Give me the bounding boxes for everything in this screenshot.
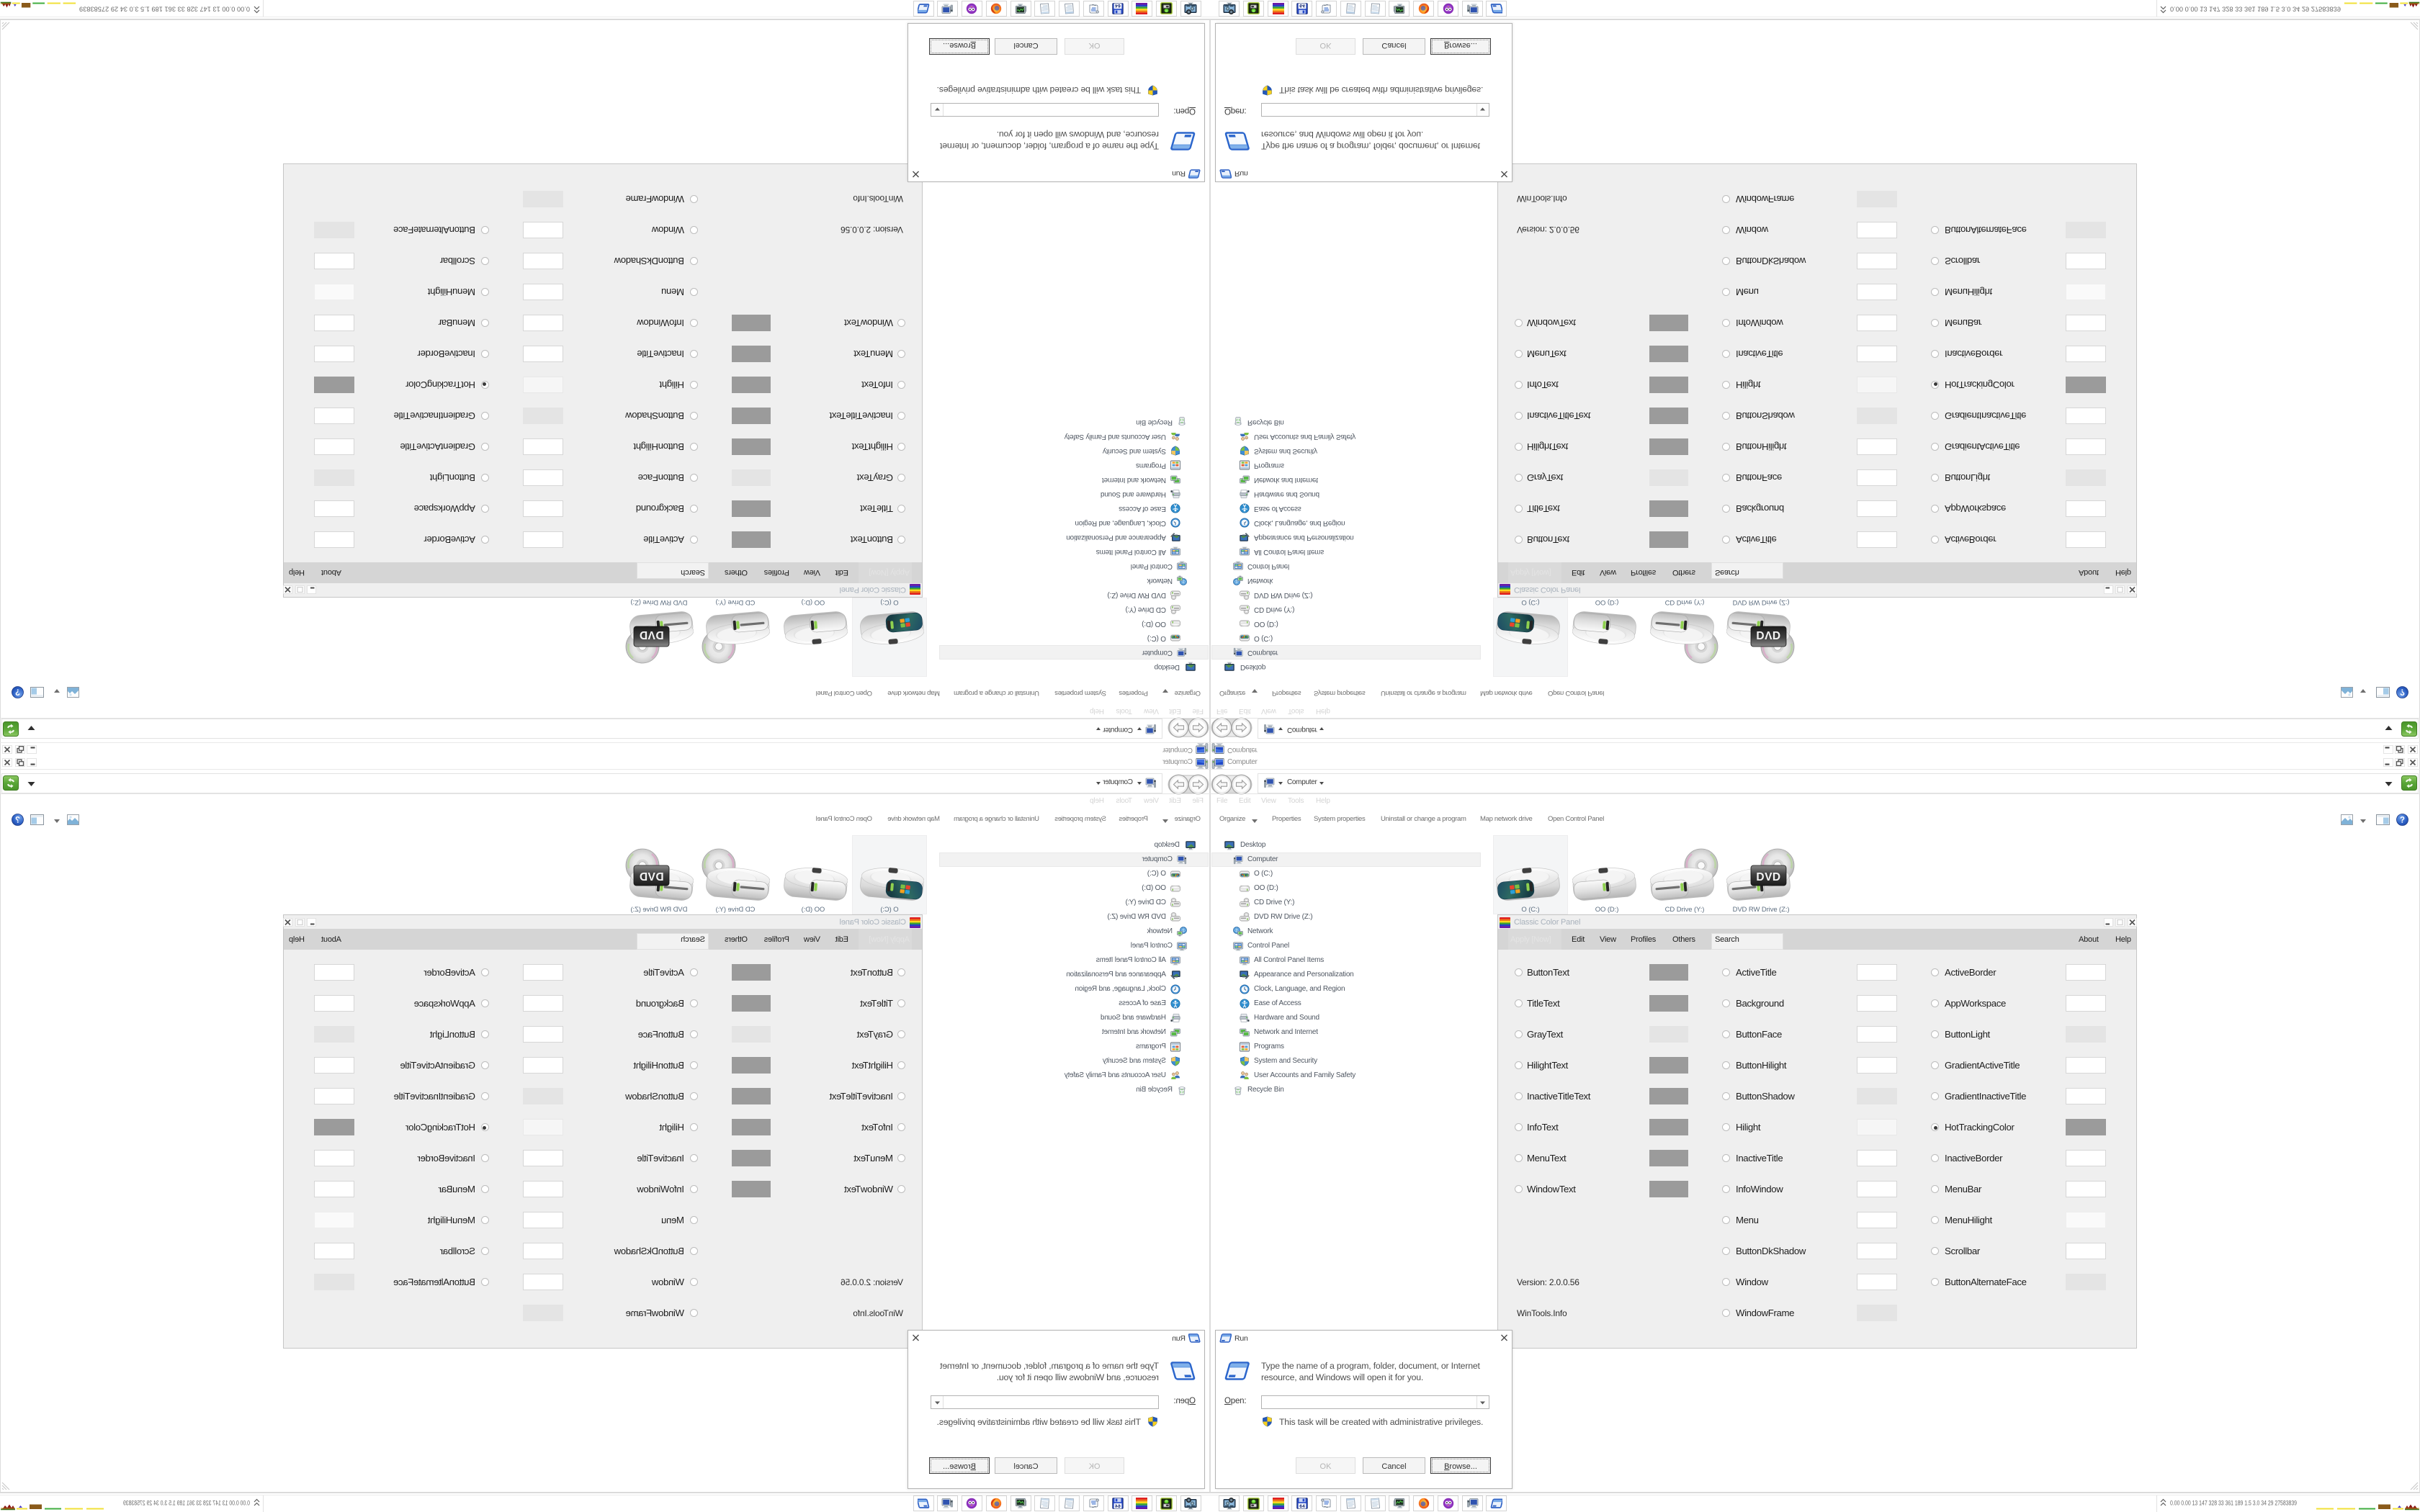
svg-text:DVD: DVD	[1756, 629, 1780, 641]
svg-text:?: ?	[2400, 687, 2405, 696]
svg-text:64: 64	[1116, 1504, 1121, 1509]
svg-text:0.00 0.00 13 147 328 33 3: 0.00 0.00 13 147 328 33 361 189 1.5 3.0 …	[2170, 6, 2341, 13]
svg-text:64: 64	[1299, 3, 1305, 8]
svg-text:0.00 0.00 13 147 328 33 3: 0.00 0.00 13 147 328 33 361 189 1.5 3.0 …	[79, 6, 250, 13]
svg-text:?: ?	[15, 687, 20, 696]
svg-text:DVD: DVD	[639, 629, 663, 641]
svg-text:?: ?	[15, 816, 20, 825]
svg-text:DVD: DVD	[1756, 871, 1780, 883]
svg-text:?: ?	[2400, 816, 2405, 825]
svg-text:64: 64	[1116, 3, 1121, 8]
svg-text:DVD: DVD	[639, 871, 663, 883]
svg-text:0.00 0.00 13 147 328 33 3: 0.00 0.00 13 147 328 33 361 189 1.5 3.0 …	[2170, 1500, 2297, 1507]
svg-text:0.00 0.00 13 147 328 33 3: 0.00 0.00 13 147 328 33 361 189 1.5 3.0 …	[123, 1500, 250, 1507]
svg-text:64: 64	[1299, 1504, 1305, 1509]
